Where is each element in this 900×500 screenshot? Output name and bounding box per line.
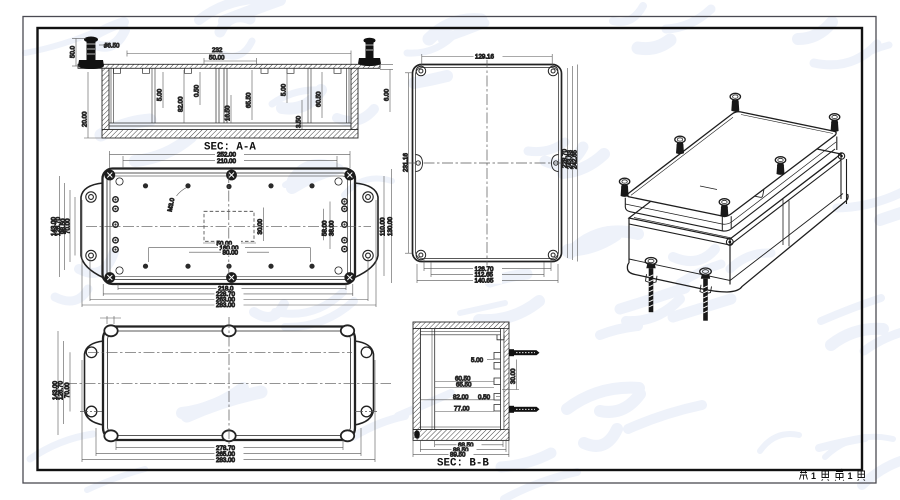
svg-text:3.50: 3.50 <box>296 115 303 128</box>
svg-text:82.00: 82.00 <box>178 96 185 112</box>
svg-text:50.0: 50.0 <box>70 45 77 58</box>
svg-text:283.00: 283.00 <box>216 457 235 464</box>
svg-text:60.50: 60.50 <box>316 91 323 107</box>
svg-text:232: 232 <box>212 47 223 54</box>
svg-text:65.50: 65.50 <box>246 92 253 108</box>
svg-text:231.16: 231.16 <box>403 153 410 172</box>
svg-text:110.00: 110.00 <box>380 217 387 236</box>
svg-text:242.65: 242.65 <box>572 150 579 169</box>
svg-text:30.00: 30.00 <box>510 368 517 384</box>
svg-text:129.16: 129.16 <box>475 54 494 61</box>
svg-text:65.50: 65.50 <box>456 382 472 389</box>
svg-text:5.00: 5.00 <box>157 88 164 101</box>
svg-text:70.00: 70.00 <box>65 218 72 234</box>
svg-text:58.00: 58.00 <box>322 220 329 236</box>
svg-text:140.65: 140.65 <box>475 278 494 285</box>
svg-text:1: 1 <box>848 471 853 481</box>
svg-text:210.00: 210.00 <box>217 158 236 165</box>
svg-text:5.00: 5.00 <box>281 83 288 96</box>
svg-text:5.00: 5.00 <box>471 357 484 364</box>
svg-text:77.00: 77.00 <box>454 406 470 413</box>
svg-text:130.00: 130.00 <box>387 217 394 236</box>
svg-text:1: 1 <box>811 471 816 481</box>
svg-text:0.50: 0.50 <box>478 394 491 401</box>
svg-text:20.00: 20.00 <box>82 111 89 127</box>
svg-text:82.00: 82.00 <box>453 394 469 401</box>
svg-text:70.00: 70.00 <box>64 382 71 398</box>
svg-text:#6.50: #6.50 <box>104 43 120 50</box>
svg-text:30.00: 30.00 <box>257 218 264 234</box>
svg-text:6.00: 6.00 <box>384 88 391 101</box>
svg-text:16.50: 16.50 <box>225 105 232 121</box>
svg-text:50.00: 50.00 <box>209 55 225 62</box>
svg-text:0.50: 0.50 <box>194 84 201 97</box>
svg-text:SEC: B-B: SEC: B-B <box>437 458 489 470</box>
svg-text:80.00: 80.00 <box>223 250 239 257</box>
svg-text:38.00: 38.00 <box>329 220 336 236</box>
svg-text:283.00: 283.00 <box>216 302 235 309</box>
